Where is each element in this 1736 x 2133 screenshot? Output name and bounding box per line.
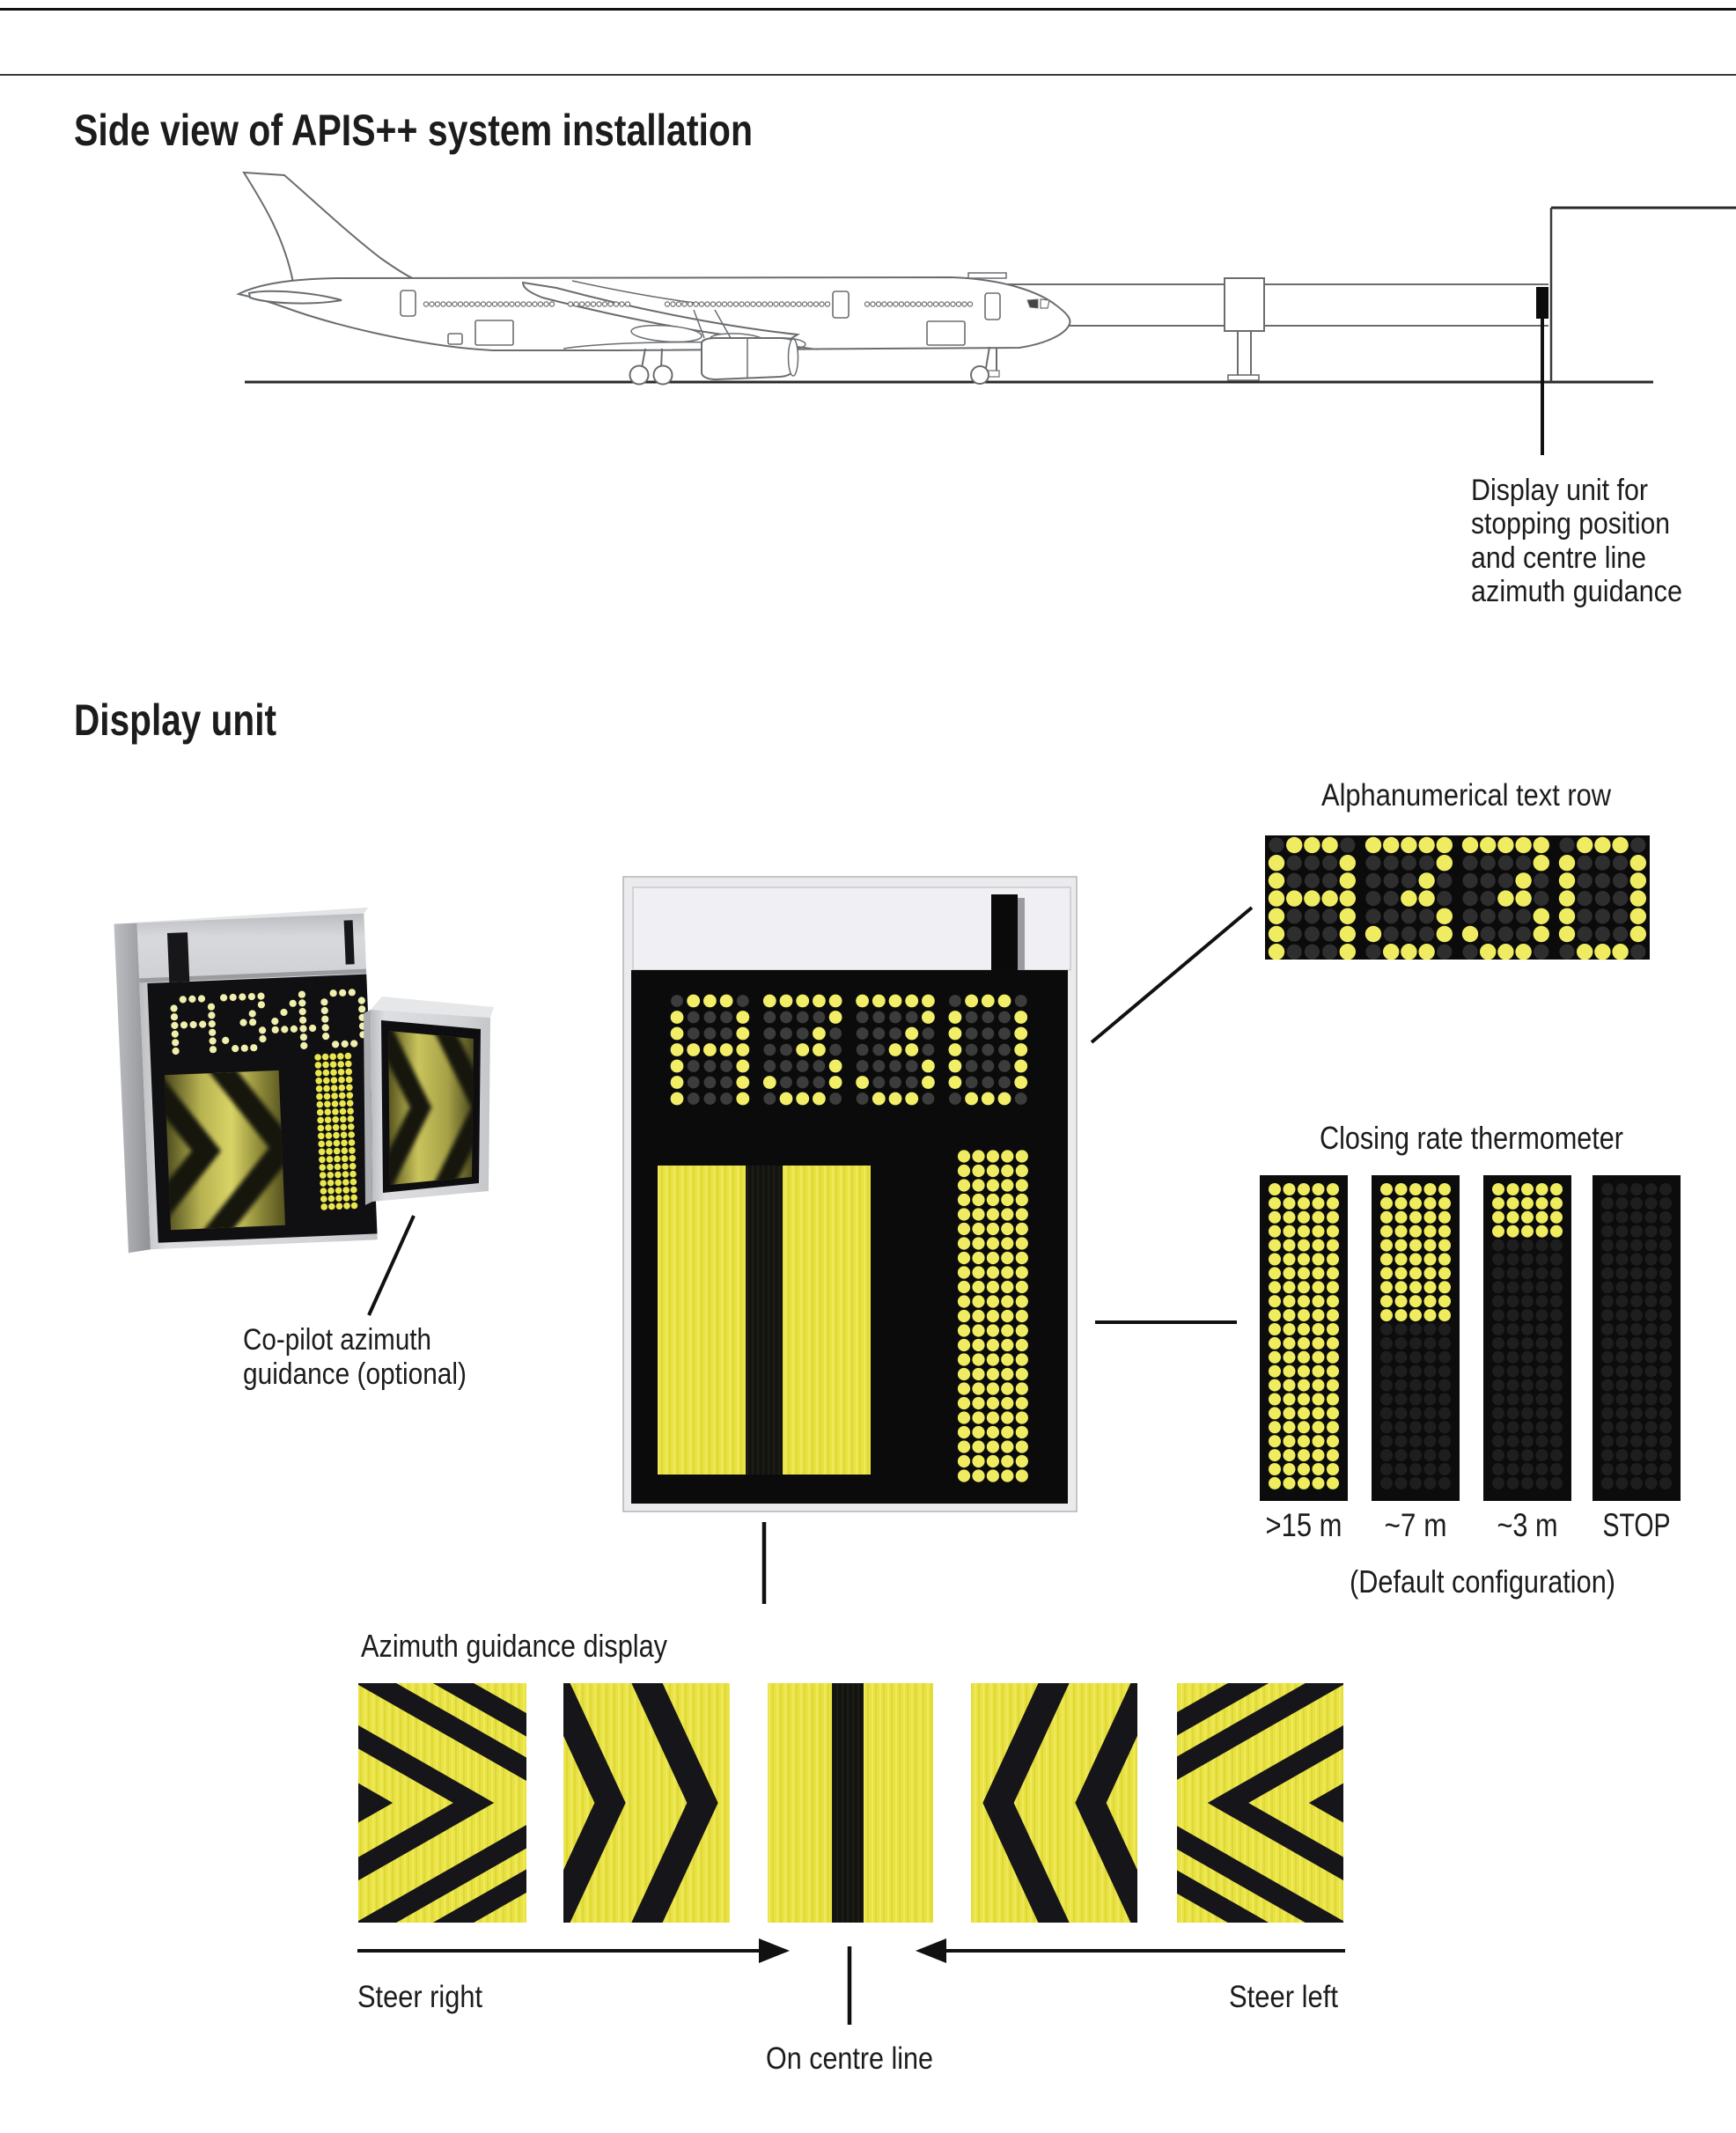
svg-text:azimuth guidance: azimuth guidance bbox=[1471, 575, 1682, 608]
svg-text:Azimuth guidance display: Azimuth guidance display bbox=[361, 1628, 667, 1664]
svg-text:On centre line: On centre line bbox=[766, 2041, 933, 2076]
svg-text:(Default configuration): (Default configuration) bbox=[1350, 1563, 1615, 1600]
svg-text:Steer left: Steer left bbox=[1229, 1980, 1338, 2014]
svg-text:Side view of APIS++ system ins: Side view of APIS++ system installation bbox=[74, 106, 753, 155]
svg-text:stopping position: stopping position bbox=[1471, 507, 1670, 541]
svg-text:Alphanumerical text row: Alphanumerical text row bbox=[1321, 778, 1612, 813]
svg-text:and centre line: and centre line bbox=[1471, 541, 1646, 575]
svg-text:Co-pilot azimuth: Co-pilot azimuth bbox=[243, 1323, 431, 1357]
svg-text:>15 m: >15 m bbox=[1266, 1507, 1342, 1543]
svg-text:Steer right: Steer right bbox=[357, 1980, 482, 2014]
svg-text:Display unit for: Display unit for bbox=[1471, 474, 1648, 507]
svg-text:~3 m: ~3 m bbox=[1497, 1507, 1558, 1543]
svg-text:Display unit: Display unit bbox=[74, 695, 276, 745]
svg-text:~7 m: ~7 m bbox=[1385, 1507, 1447, 1543]
svg-text:Closing rate thermometer: Closing rate thermometer bbox=[1320, 1120, 1623, 1156]
svg-text:guidance (optional): guidance (optional) bbox=[243, 1357, 467, 1391]
svg-text:STOP: STOP bbox=[1603, 1507, 1671, 1543]
